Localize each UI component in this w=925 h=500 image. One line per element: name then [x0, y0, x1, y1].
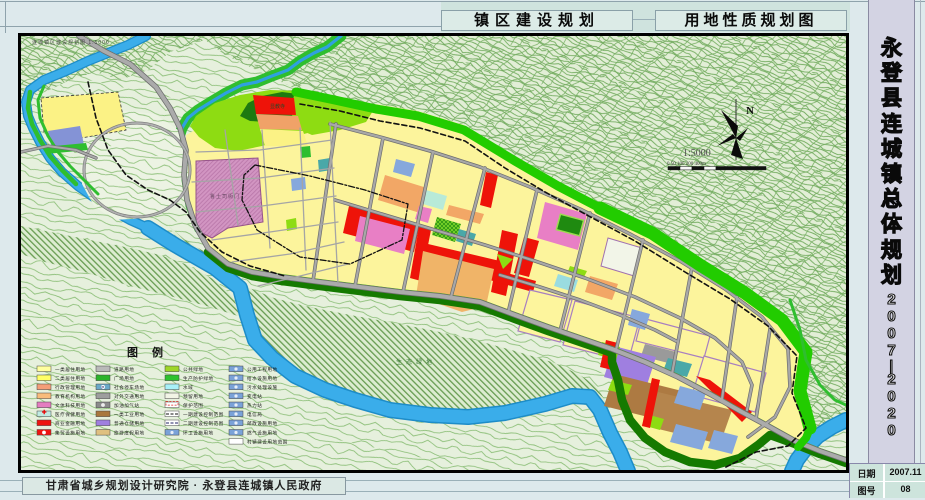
- svg-text:社会停车场地: 社会停车场地: [114, 384, 145, 391]
- svg-text:显教寺: 显教寺: [270, 103, 285, 110]
- svg-text:燃气设施用地: 燃气设施用地: [247, 430, 278, 437]
- svg-text:旅游度假用地: 旅游度假用地: [114, 430, 145, 437]
- svg-text:二期建设控制范围: 二期建设控制范围: [183, 420, 224, 427]
- svg-text:公用工程用地: 公用工程用地: [247, 366, 278, 373]
- svg-text:普通仓储用地: 普通仓储用地: [114, 420, 145, 427]
- svg-text:变电站: 变电站: [247, 393, 262, 400]
- svg-text:教育机构用地: 教育机构用地: [55, 393, 86, 400]
- svg-text:公共绿地: 公共绿地: [183, 366, 203, 373]
- svg-text:给水设施用地: 给水设施用地: [247, 375, 278, 382]
- svg-text:广场用地: 广场用地: [114, 375, 134, 382]
- svg-text:行政管理用地: 行政管理用地: [55, 384, 86, 391]
- svg-text:一类居住用地: 一类居住用地: [55, 366, 86, 373]
- svg-text:环卫设施用地: 环卫设施用地: [183, 430, 214, 437]
- svg-text:集贸设施用地: 集贸设施用地: [55, 430, 86, 437]
- svg-text:保护范围: 保护范围: [183, 402, 203, 409]
- svg-text:对外交通用地: 对外交通用地: [114, 393, 145, 400]
- svg-text:二类居住用地: 二类居住用地: [55, 375, 86, 382]
- svg-text:商业金融用地: 商业金融用地: [55, 420, 86, 427]
- svg-text:图例: 图例: [127, 345, 177, 359]
- svg-text:道路用地: 道路用地: [114, 366, 134, 373]
- svg-text:热力站: 热力站: [247, 402, 262, 409]
- svg-text:N: N: [746, 105, 754, 117]
- svg-text:村镇建设用地范围: 村镇建设用地范围: [247, 439, 288, 446]
- svg-text:文体科技用地: 文体科技用地: [55, 402, 86, 409]
- svg-text:加油加气站: 加油加气站: [114, 402, 139, 409]
- svg-text:鲁土司衙门: 鲁土司衙门: [210, 193, 240, 200]
- svg-text:连城镇区建设规划图 1:5000: 连城镇区建设规划图 1:5000: [32, 39, 110, 46]
- svg-text:污水处理设施: 污水处理设施: [247, 384, 278, 391]
- svg-text:邮政设施用地: 邮政设施用地: [247, 420, 278, 427]
- svg-text:预留用地: 预留用地: [183, 393, 203, 400]
- svg-text:P: P: [101, 385, 104, 390]
- svg-text:电信局: 电信局: [247, 411, 262, 418]
- svg-text:生产防护绿地: 生产防护绿地: [183, 375, 214, 382]
- svg-text:一类工业用地: 一类工业用地: [114, 411, 145, 418]
- svg-text:1:5000: 1:5000: [683, 148, 711, 159]
- svg-text:医疗保健用地: 医疗保健用地: [55, 411, 86, 418]
- svg-text:生态绿地: 生态绿地: [396, 358, 436, 366]
- svg-text:水域: 水域: [183, 384, 193, 390]
- svg-text:一期建设控制范围: 一期建设控制范围: [183, 411, 224, 418]
